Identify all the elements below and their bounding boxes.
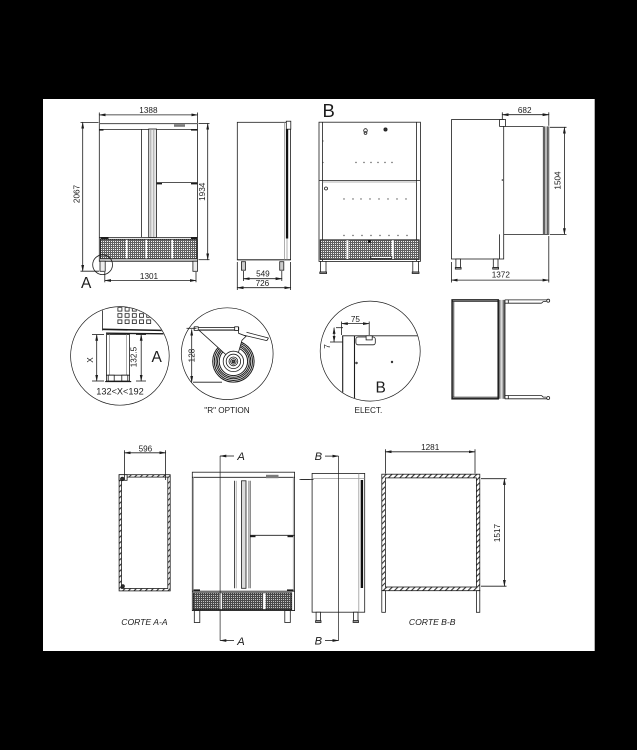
svg-text:1388: 1388 <box>139 106 158 115</box>
svg-text:75: 75 <box>351 315 361 324</box>
svg-text:A: A <box>152 349 163 366</box>
svg-text:682: 682 <box>518 106 532 115</box>
svg-text:A: A <box>81 275 92 292</box>
svg-text:X: X <box>86 357 95 363</box>
svg-text:596: 596 <box>139 444 153 453</box>
svg-text:A: A <box>236 636 244 648</box>
svg-text:B: B <box>323 100 335 121</box>
svg-text:132<X<192: 132<X<192 <box>96 387 144 397</box>
svg-text:CORTE B-B: CORTE B-B <box>409 617 456 627</box>
svg-text:1517: 1517 <box>493 523 502 542</box>
svg-text:2067: 2067 <box>73 184 82 203</box>
svg-text:1372: 1372 <box>492 271 511 280</box>
svg-text:CORTE A-A: CORTE A-A <box>121 617 168 627</box>
svg-text:1301: 1301 <box>140 272 159 281</box>
svg-text:1504: 1504 <box>554 171 563 190</box>
svg-text:A: A <box>236 451 244 463</box>
svg-text:ELECT.: ELECT. <box>355 406 383 415</box>
svg-text:726: 726 <box>256 279 270 288</box>
svg-text:1281: 1281 <box>421 443 440 452</box>
svg-text:"R" OPTION: "R" OPTION <box>204 406 249 415</box>
svg-text:B: B <box>315 451 323 463</box>
svg-text:132.5: 132.5 <box>130 346 139 367</box>
svg-text:1934: 1934 <box>198 182 207 201</box>
svg-text:128: 128 <box>188 348 197 362</box>
svg-text:B: B <box>376 380 386 397</box>
svg-text:549: 549 <box>256 270 270 279</box>
svg-text:B: B <box>315 636 323 648</box>
svg-text:7: 7 <box>323 344 332 349</box>
